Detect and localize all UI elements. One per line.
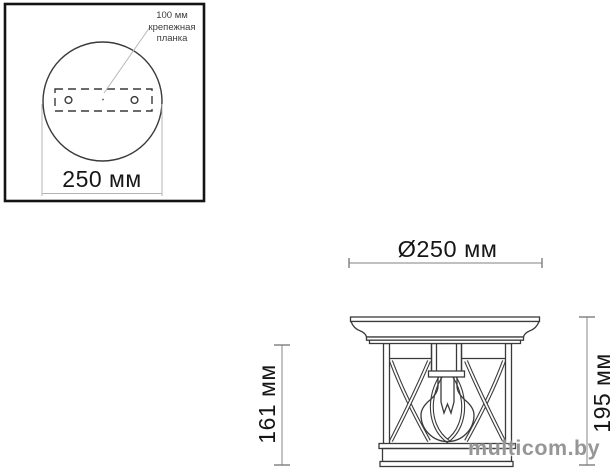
top-view-width-dimension-label: 250 мм: [37, 166, 167, 193]
screw-hole-left: [65, 97, 72, 104]
left-post: [384, 344, 390, 445]
drawing-linework: [0, 0, 616, 472]
technical-drawing-page: 100 мм крепежная планка 250 мм Ø250 мм 1…: [0, 0, 616, 472]
bottom-lip: [380, 462, 513, 467]
bulb-filament: [441, 402, 454, 413]
right-post: [506, 344, 512, 445]
screw-hole-right: [131, 97, 138, 104]
lattice-right-x: [466, 361, 504, 441]
canopy: [351, 317, 540, 344]
height-dimension-left-label: 161 мм: [254, 344, 280, 464]
light-bulb: [421, 377, 474, 442]
bulb-socket: [429, 344, 465, 378]
canopy-circle: [43, 42, 162, 161]
diameter-dimension-label: Ø250 мм: [380, 236, 515, 263]
mounting-bracket-callout: 100 мм крепежная планка: [134, 10, 210, 45]
watermark-text: multicom.by: [468, 436, 600, 461]
height-dimension-right-label: 195 мм: [589, 333, 615, 453]
bulb-glass-outline: [421, 377, 474, 442]
lattice-left-x: [391, 361, 429, 441]
center-mark: [102, 99, 104, 101]
